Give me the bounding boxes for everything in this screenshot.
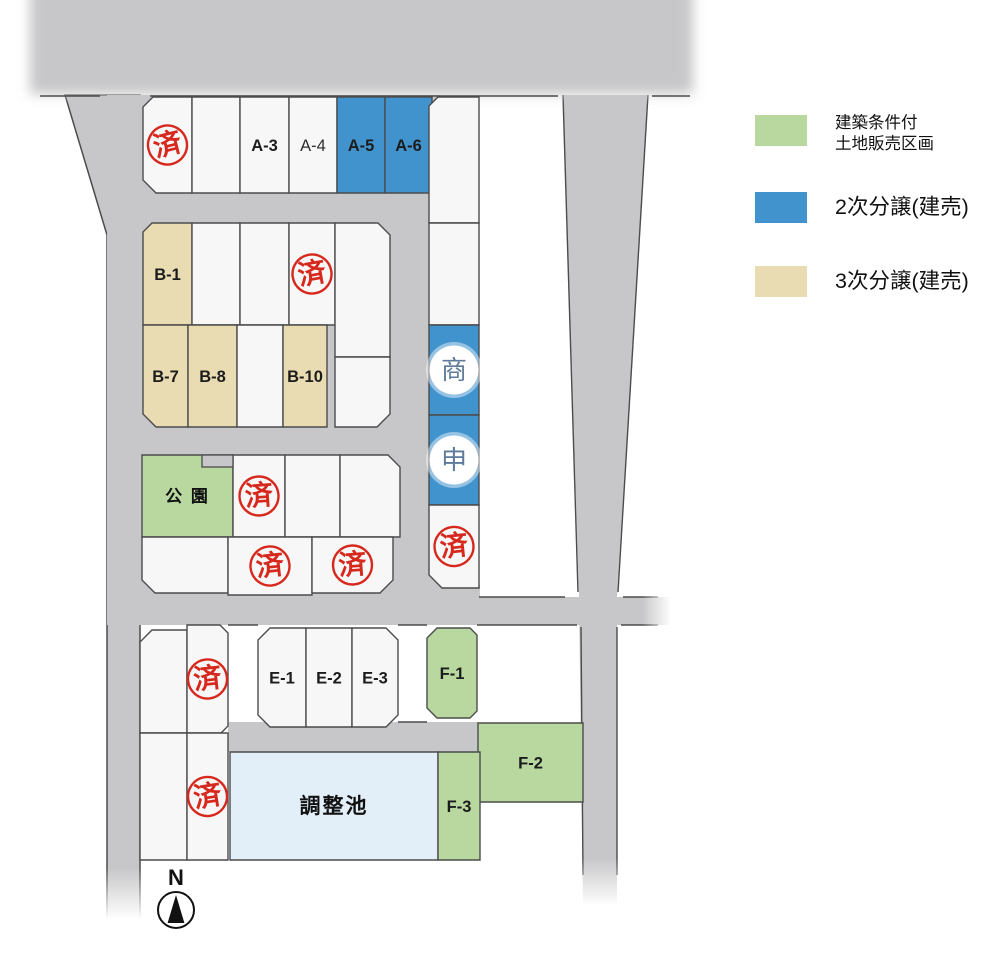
- lot-e1-label: E-1: [269, 670, 295, 688]
- lot-a6-label: A-6: [395, 137, 422, 155]
- legend-swatch-blue: [755, 192, 807, 223]
- lot-c3: [340, 455, 400, 537]
- status-circle: 申: [426, 432, 482, 488]
- pond-label: 調整池: [300, 794, 369, 818]
- lot-f1-label: F-1: [440, 665, 465, 683]
- lot-b5: [335, 223, 390, 357]
- sold-stamp-text: 済: [337, 548, 368, 581]
- status-circle-text: 商: [441, 355, 467, 385]
- legend-item-third-phase: 3次分譲(建売): [755, 266, 969, 297]
- sold-stamp-text: 済: [191, 778, 224, 813]
- legend-label: 3次分譲(建売): [835, 266, 969, 297]
- legend-label-line1: 建築条件付: [835, 113, 934, 134]
- lot-e3-label: E-3: [362, 670, 388, 688]
- legend-swatch-green: [755, 115, 807, 146]
- north-label: N: [155, 866, 197, 890]
- lot-b9: [237, 325, 283, 427]
- lot-park-label: 公 園: [165, 487, 210, 506]
- north-compass: N: [155, 866, 197, 929]
- lot-b7-label: B-7: [152, 368, 179, 386]
- top-road-blurred: [30, 0, 693, 94]
- lot-b3: [240, 223, 289, 325]
- lot-b10-label: B-10: [287, 368, 323, 386]
- lot-e2-label: E-2: [316, 670, 342, 688]
- road-fade: [98, 868, 144, 932]
- legend-label: 建築条件付 土地販売区画: [835, 113, 934, 155]
- legend-item-second-phase: 2次分譲(建売): [755, 192, 969, 223]
- lot-b8-label: B-8: [199, 368, 226, 386]
- lot-b6: [335, 357, 390, 427]
- road-fade: [576, 858, 622, 918]
- lot-l3: [140, 733, 187, 860]
- lot-c4: [142, 537, 228, 593]
- sold-stamp-text: 済: [254, 549, 286, 583]
- sold-stamp-text: 済: [192, 662, 224, 696]
- legend-label-line2: 土地販売区画: [835, 134, 934, 155]
- lot-a4-label: A-4: [300, 137, 326, 155]
- sold-stamp-text: 済: [244, 479, 275, 512]
- lot-a3-label: A-3: [251, 137, 278, 155]
- lot-a2: [192, 97, 240, 193]
- lot-s1: [429, 97, 479, 223]
- lot-l1: [140, 630, 187, 733]
- legend-swatch-tan: [755, 266, 807, 297]
- legend-item-conditional-land: 建築条件付 土地販売区画: [755, 115, 934, 155]
- status-circle-text: 申: [441, 445, 467, 475]
- lot-f3-label: F-3: [447, 798, 472, 816]
- road-fade: [642, 590, 678, 630]
- lot-a5-label: A-5: [348, 137, 375, 155]
- lot-b1-label: B-1: [154, 266, 181, 284]
- subdivision-site-plan: 済A-3A-4A-5A-6商申済B-1済B-7B-8B-10公 園済済済済済E-…: [0, 0, 1000, 958]
- lot-c2: [285, 455, 340, 537]
- status-circle: 商: [426, 342, 482, 398]
- legend-label: 2次分譲(建売): [835, 192, 969, 223]
- lot-s2: [429, 223, 479, 325]
- sold-stamp-text: 済: [438, 529, 470, 563]
- lot-b2: [192, 223, 240, 325]
- compass-circle-icon: [157, 891, 195, 929]
- park-notch: [202, 455, 233, 467]
- lot-f2-label: F-2: [518, 755, 543, 773]
- north-arrow-icon: [164, 895, 188, 923]
